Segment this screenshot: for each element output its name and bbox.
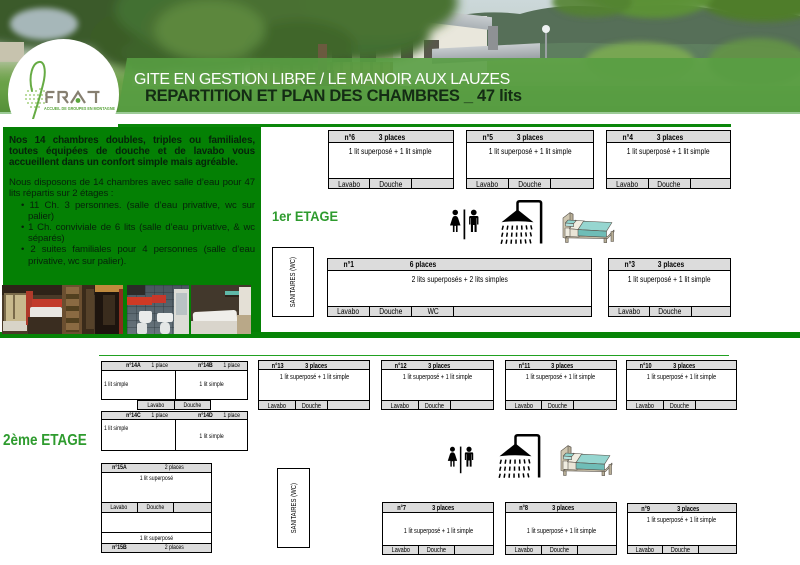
svg-text:ACCUEIL DE GROUPES EN MONTAGNE: ACCUEIL DE GROUPES EN MONTAGNE bbox=[44, 106, 115, 111]
